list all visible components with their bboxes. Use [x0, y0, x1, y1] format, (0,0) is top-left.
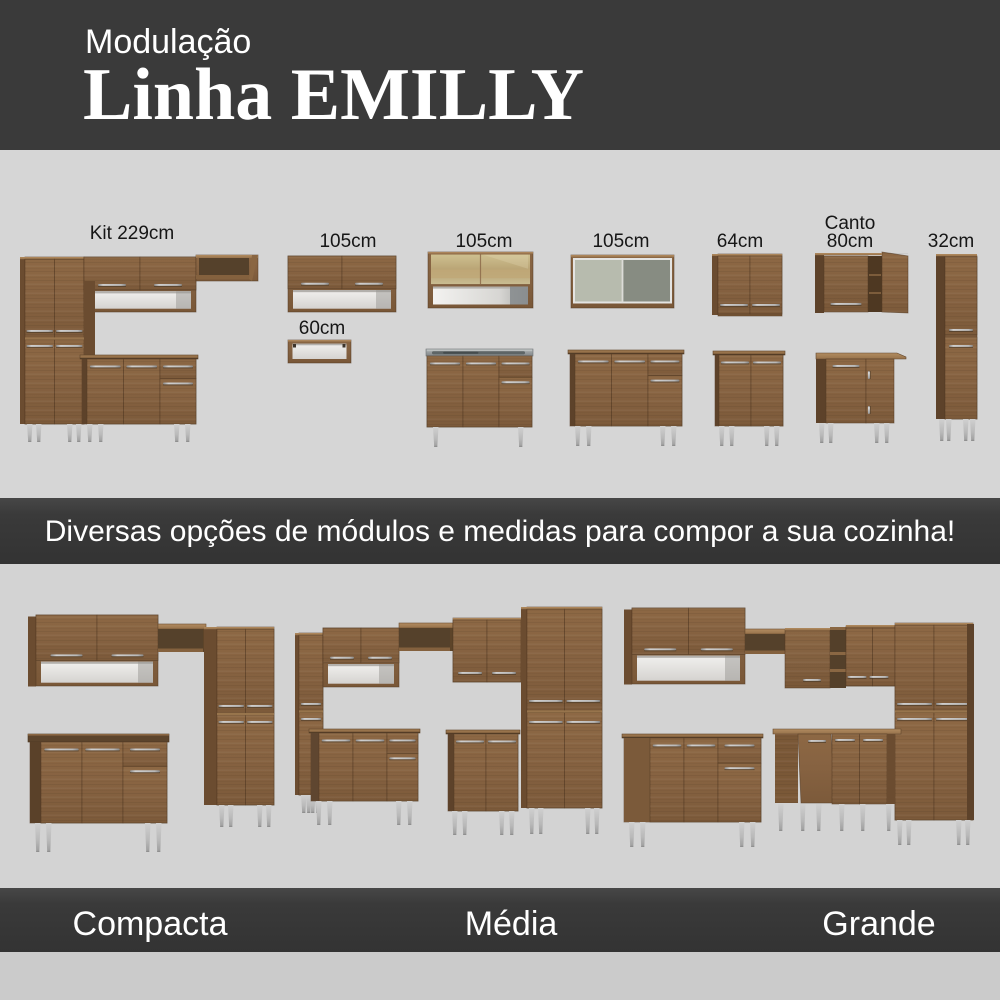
- svg-text:Grande: Grande: [822, 905, 935, 943]
- svg-text:32cm: 32cm: [928, 231, 974, 252]
- svg-text:60cm: 60cm: [299, 318, 345, 339]
- svg-text:105cm: 105cm: [455, 231, 512, 252]
- svg-text:105cm: 105cm: [592, 231, 649, 252]
- svg-text:Diversas opções de módulos e m: Diversas opções de módulos e medidas par…: [45, 515, 956, 548]
- svg-text:Kit 229cm: Kit 229cm: [90, 223, 174, 244]
- svg-text:Média: Média: [465, 905, 558, 943]
- svg-text:Compacta: Compacta: [73, 905, 228, 943]
- svg-text:105cm: 105cm: [319, 231, 376, 252]
- svg-text:Linha EMILLY: Linha EMILLY: [83, 54, 584, 136]
- svg-text:80cm: 80cm: [827, 231, 873, 252]
- svg-text:64cm: 64cm: [717, 231, 763, 252]
